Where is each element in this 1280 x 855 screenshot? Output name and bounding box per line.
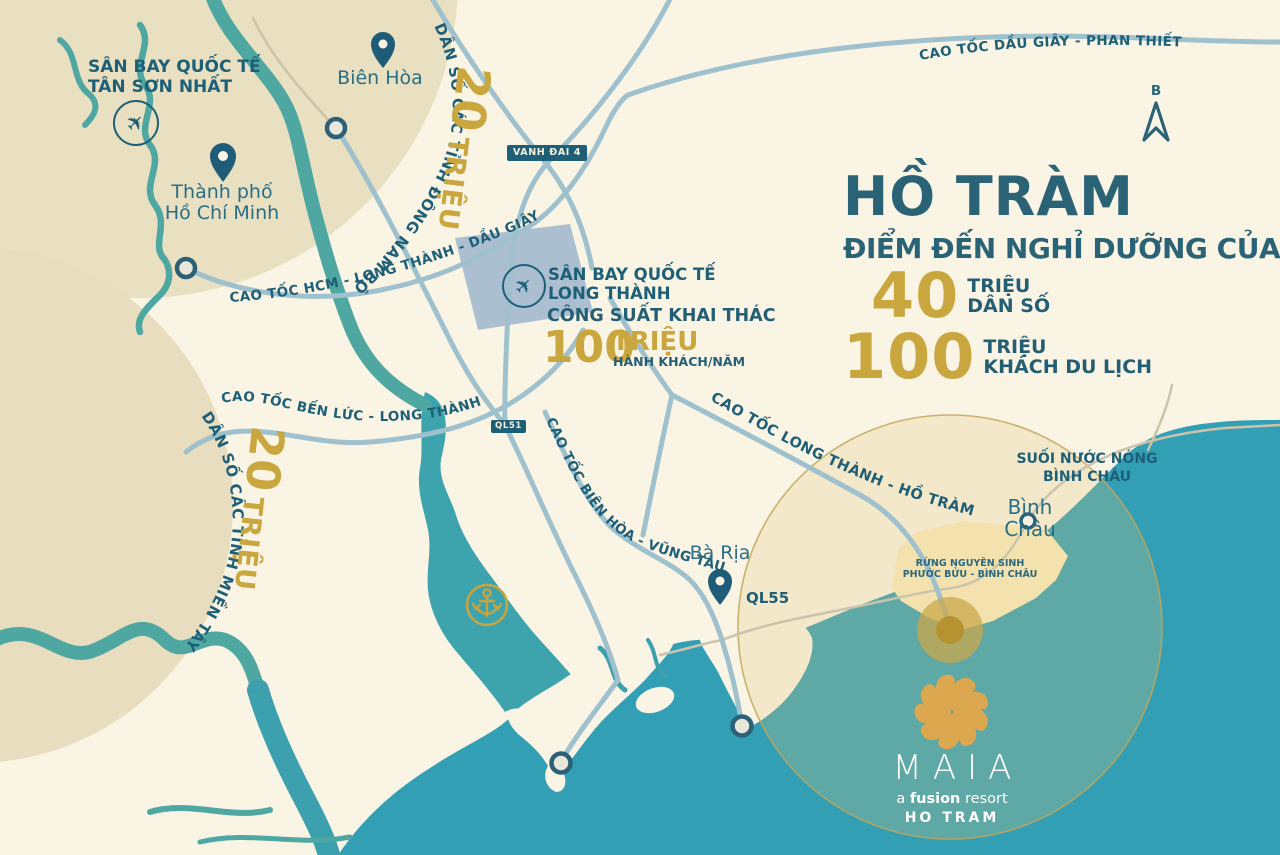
title-block: HỒ TRÀM ĐIỂM ĐẾN NGHỈ DƯỠNG CỦA 40 TRIỆU… <box>843 170 1263 387</box>
bien-hoa-label: Biên Hòa <box>335 68 425 89</box>
hot-spring-label: SUỐI NƯỚC NÓNG BÌNH CHÂU <box>1012 450 1162 486</box>
resort-name: MAIA <box>852 748 1052 788</box>
ho-tram-map-infographic: CAO TỐC HCM - LONG THÀNH - DẦU GIÂY CAO … <box>0 0 1280 855</box>
ql55-label: QL55 <box>746 590 789 607</box>
airplane-icon: ✈ <box>113 100 159 146</box>
forest-label: RỪNG NGUYÊN SINH PHƯỚC BỬU - BÌNH CHÂU <box>895 559 1045 581</box>
junction-node <box>327 119 345 137</box>
page-title: HỒ TRÀM <box>843 170 1263 224</box>
stat-population: 40 TRIỆU DÂN SỐ <box>871 267 1263 326</box>
junction-node <box>733 717 752 736</box>
map-pin-icon <box>705 567 735 605</box>
junction-node <box>552 754 571 773</box>
airplane-icon: ✈ <box>502 264 546 308</box>
capacity-suffix: HÀNH KHÁCH/NĂM <box>613 354 745 369</box>
ql51-badge: QL51 <box>491 420 526 433</box>
long-thanh-airport-label: SÂN BAY QUỐC TẾ LONG THÀNH <box>548 266 716 304</box>
stat-tourists: 100 TRIỆU KHÁCH DU LỊCH <box>843 328 1263 387</box>
junction-node <box>177 259 195 277</box>
ring-road-4-badge: VANH ĐAI 4 <box>507 145 587 161</box>
resort-marker-inner <box>936 616 964 644</box>
maia-resort-logo: MAIA a fusion resort HO TRAM <box>852 748 1052 826</box>
hcmc-label: Thành phố Hồ Chí Minh <box>162 182 282 225</box>
map-pin-icon <box>207 142 239 182</box>
map-pin-icon <box>368 30 398 68</box>
capacity-unit: TRIỆU <box>612 331 698 354</box>
ba-ria-label: Bà Rịa <box>680 543 760 564</box>
compass-north-label: B <box>1143 83 1169 99</box>
tan-son-nhat-label: SÂN BAY QUỐC TẾ TÂN SƠN NHẤT <box>88 58 261 97</box>
base-map: CAO TỐC HCM - LONG THÀNH - DẦU GIÂY CAO … <box>0 0 1280 855</box>
binh-chau-label: Bình Châu <box>985 496 1075 541</box>
resort-tagline: a fusion resort <box>852 791 1052 807</box>
resort-location: HO TRAM <box>852 810 1052 826</box>
